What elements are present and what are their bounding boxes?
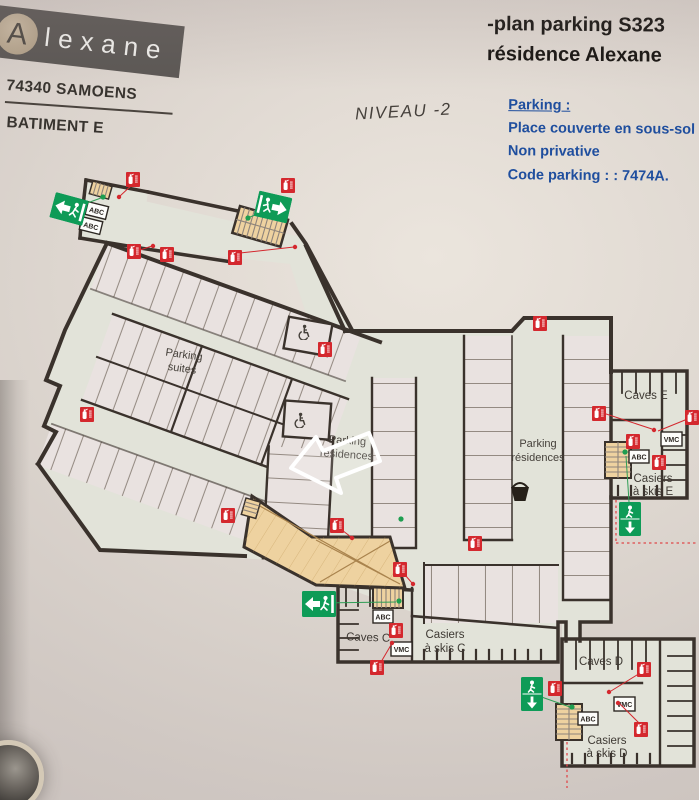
- fire-extinguisher-icon: [281, 178, 295, 193]
- svg-text:VMC: VMC: [394, 647, 410, 654]
- alexane-logo-mark: A: [0, 11, 40, 56]
- svg-text:résidences: résidences: [511, 452, 565, 464]
- svg-text:ABC: ABC: [375, 615, 390, 622]
- fire-extinguisher-icon: [652, 455, 666, 470]
- fire-extinguisher-icon: [548, 681, 562, 696]
- parking-plan-photo: Parking suites ABC: [0, 0, 699, 800]
- svg-text:ABC: ABC: [631, 455, 646, 462]
- exit-sign-icon: [619, 502, 641, 536]
- fire-extinguisher-icon: [221, 508, 235, 523]
- plan-title: -plan parking S323 résidence Alexane: [487, 9, 699, 71]
- svg-text:à skis C: à skis C: [425, 643, 466, 655]
- fire-extinguisher-icon: [634, 722, 648, 737]
- fire-extinguisher-icon: [126, 172, 140, 187]
- parking-info: Parking : Place couverte en sous-sol Non…: [508, 94, 696, 188]
- caves-e-label: Caves E: [624, 390, 668, 402]
- svg-text:à skis D: à skis D: [587, 748, 628, 760]
- accessible-bay-2: [283, 401, 331, 440]
- plan-title-line1: -plan parking S323: [487, 9, 699, 41]
- fire-extinguisher-icon: [80, 407, 94, 422]
- plan-title-line2: résidence Alexane: [487, 39, 699, 71]
- fire-extinguisher-icon: [160, 247, 174, 262]
- abc-cabinet: ABC: [578, 712, 598, 725]
- abc-cabinet: ABC: [373, 610, 393, 623]
- fire-extinguisher-icon: [318, 342, 332, 357]
- casiers-e-label: Casiers: [634, 473, 673, 485]
- svg-text:Parking: Parking: [519, 438, 556, 450]
- parking-info-heading: Parking :: [508, 94, 695, 119]
- caves-c-stairs: [373, 586, 403, 608]
- fire-extinguisher-icon: [330, 518, 344, 533]
- svg-text:à skis E: à skis E: [633, 486, 674, 498]
- caves-c-label: Caves C: [346, 631, 391, 645]
- alexane-logo-text: lexane: [43, 21, 170, 66]
- casiers-d-label: Casiers: [588, 735, 627, 747]
- fire-extinguisher-icon: [393, 562, 407, 577]
- parking-info-line: Non privative: [508, 141, 695, 166]
- fire-extinguisher-icon: [127, 244, 141, 259]
- parking-info-line: Place couverte en sous-sol: [508, 117, 695, 142]
- fire-extinguisher-icon: [370, 660, 384, 675]
- fire-extinguisher-icon: [228, 250, 242, 265]
- exit-sign-icon: [302, 591, 336, 617]
- fire-extinguisher-icon: [637, 662, 651, 677]
- svg-text:VMC: VMC: [664, 437, 680, 444]
- fire-extinguisher-icon: [685, 410, 699, 425]
- caves-d-label: Caves D: [579, 656, 623, 668]
- fire-extinguisher-icon: [592, 406, 606, 421]
- fire-extinguisher-icon: [533, 316, 547, 331]
- svg-text:ABC: ABC: [580, 717, 595, 724]
- casiers-c-label: Casiers: [426, 629, 465, 641]
- fire-extinguisher-icon: [626, 434, 640, 449]
- fire-extinguisher-icon: [389, 623, 403, 638]
- exit-sign-icon: [521, 677, 543, 711]
- vmc-box: VMC: [391, 642, 412, 656]
- fire-extinguisher-icon: [468, 536, 482, 551]
- parking-info-line: Code parking : : 7474A.: [508, 164, 695, 189]
- vmc-box: VMC: [661, 432, 682, 446]
- abc-cabinet: ABC: [629, 450, 649, 463]
